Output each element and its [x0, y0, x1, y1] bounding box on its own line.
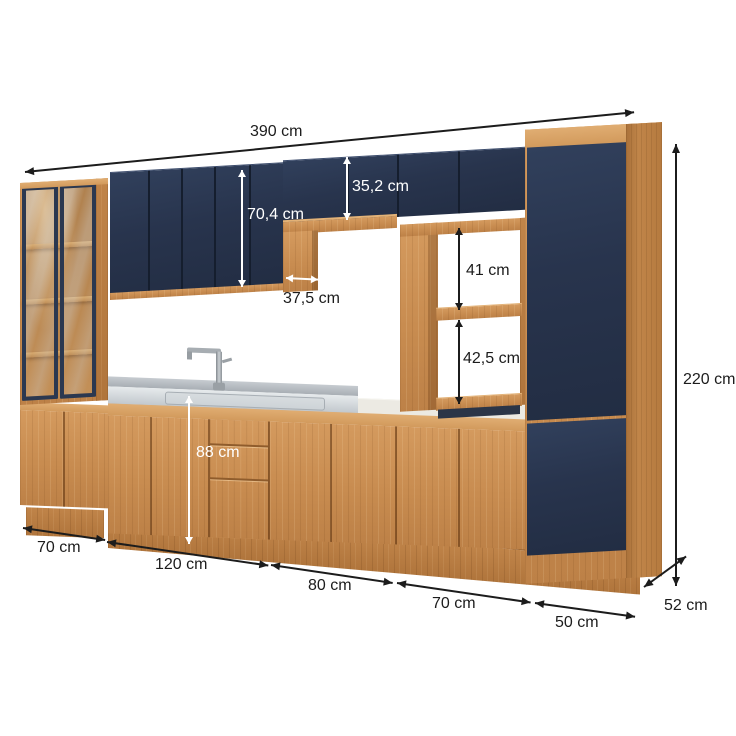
- arrowhead: [455, 320, 463, 327]
- tall-pantry-cabinet: [525, 122, 662, 584]
- tall-cabinet-lower-door: [527, 418, 626, 556]
- door-gap: [214, 167, 216, 288]
- door-gap: [148, 171, 150, 292]
- dim-depth-label: 52 cm: [664, 597, 708, 615]
- dim-total-height-label: 220 cm: [683, 371, 735, 389]
- dim-lower-niche-label: 42,5 cm: [463, 350, 520, 368]
- arrowhead: [185, 396, 193, 403]
- dim-worktop-height-label: 88 cm: [196, 444, 240, 462]
- arrowhead: [311, 275, 318, 283]
- door-gap: [181, 169, 183, 290]
- arrowhead: [22, 524, 32, 533]
- tall-cabinet-side-panel: [626, 122, 662, 578]
- arrowhead: [185, 537, 193, 544]
- arrowhead: [238, 170, 246, 177]
- arrowhead: [238, 280, 246, 287]
- dim-hood-panel-label: 37,5 cm: [283, 290, 340, 308]
- arrowhead: [25, 167, 35, 176]
- tall-cabinet-upper-door: [527, 142, 626, 421]
- arrowhead: [672, 577, 680, 586]
- dim-hood-panel-line: [286, 278, 318, 280]
- dim-base-left-label: 70 cm: [37, 539, 81, 557]
- shelf-unit-left-side: [400, 223, 438, 412]
- door-gap: [458, 151, 460, 213]
- dim-total-width-label: 390 cm: [250, 123, 302, 141]
- shelf-unit-middle-shelf: [436, 303, 522, 321]
- dim-top-cabinet-height-label: 35,2 cm: [352, 178, 409, 196]
- open-shelf-unit: [400, 218, 527, 412]
- arrowhead: [106, 538, 116, 547]
- arrowhead: [343, 213, 351, 220]
- dim-sink-cabinet-label: 120 cm: [155, 556, 207, 574]
- arrowhead: [626, 612, 636, 621]
- dim-tall-cabinet-label: 50 cm: [555, 614, 599, 632]
- wall-cabinet-band: [20, 0, 680, 700]
- dim-upper-niche-label: 41 cm: [466, 262, 510, 280]
- arrowhead: [286, 274, 293, 282]
- arrowhead: [672, 144, 680, 153]
- arrowhead: [396, 579, 406, 588]
- door-gap: [249, 165, 251, 286]
- arrowhead: [455, 397, 463, 404]
- glass-cabinet-side-panel: [96, 178, 108, 401]
- arrowhead: [383, 578, 393, 587]
- kitchen-dimension-diagram: 390 cm 220 cm 70,4 cm 35,2 cm 37,5 cm 41…: [0, 0, 736, 736]
- glass-door-right: [60, 183, 96, 399]
- arrowhead: [270, 561, 280, 570]
- shelf-unit-top-bar: [400, 218, 527, 237]
- arrowhead: [455, 303, 463, 310]
- dim-wall-cabinet-height-label: 70,4 cm: [247, 206, 304, 224]
- dim-right-cabinet-label: 70 cm: [432, 595, 476, 613]
- arrowhead: [96, 535, 106, 544]
- dim-center-cabinet-label: 80 cm: [308, 577, 352, 595]
- glass-door-left: [22, 185, 58, 401]
- wall-cabinets-tall-group: [110, 162, 283, 294]
- arrowhead: [343, 157, 351, 164]
- arrowhead: [534, 599, 544, 608]
- glass-display-cabinet: [20, 178, 108, 405]
- arrowhead: [455, 228, 463, 235]
- arrowhead: [521, 597, 531, 606]
- arrowhead: [259, 560, 269, 569]
- arrowhead: [625, 108, 635, 117]
